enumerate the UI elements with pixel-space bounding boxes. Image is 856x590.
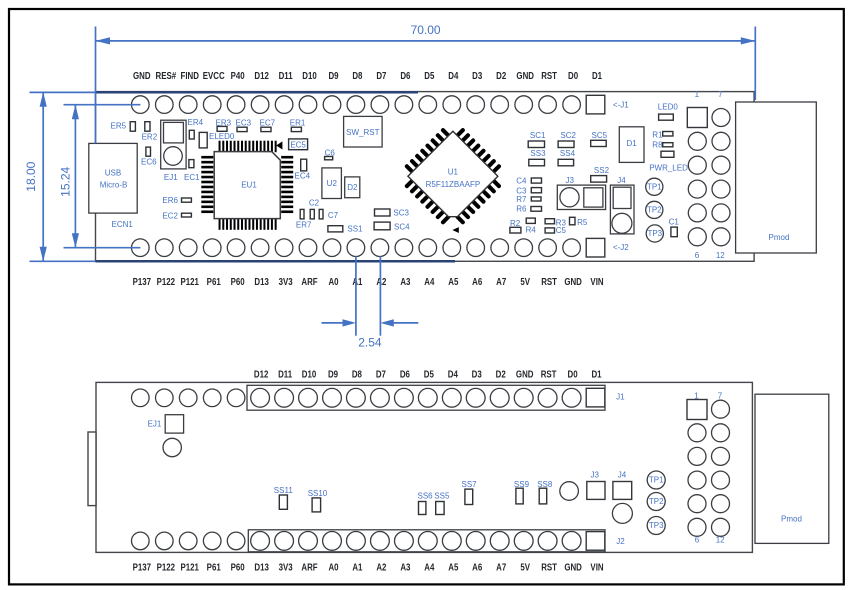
- svg-text:J3: J3: [566, 176, 575, 185]
- svg-text:A6: A6: [472, 276, 482, 287]
- svg-text:C2: C2: [309, 199, 320, 208]
- svg-text:GND: GND: [564, 561, 582, 572]
- svg-text:SS10: SS10: [308, 489, 328, 498]
- svg-text:D2: D2: [496, 368, 506, 379]
- svg-text:D3: D3: [472, 70, 482, 81]
- svg-text:TP3: TP3: [647, 229, 662, 238]
- svg-text:R6: R6: [516, 205, 527, 214]
- svg-text:3V3: 3V3: [279, 276, 293, 287]
- svg-text:D3: D3: [472, 368, 482, 379]
- svg-text:D4: D4: [448, 368, 458, 379]
- svg-text:RST: RST: [541, 561, 557, 572]
- svg-text:C5: C5: [556, 226, 567, 235]
- svg-text:P122: P122: [157, 561, 175, 572]
- svg-text:P61: P61: [207, 561, 221, 572]
- svg-text:Micro-B: Micro-B: [100, 180, 128, 189]
- svg-text:R5F11ZBAAFP: R5F11ZBAAFP: [426, 180, 481, 189]
- svg-text:7: 7: [718, 392, 723, 401]
- svg-text:12: 12: [716, 536, 725, 545]
- svg-text:A7: A7: [496, 276, 506, 287]
- svg-text:D9: D9: [328, 70, 338, 81]
- svg-text:ER1: ER1: [290, 118, 306, 127]
- svg-text:SS4: SS4: [560, 149, 576, 158]
- svg-text:A5: A5: [448, 276, 458, 287]
- svg-text:J4: J4: [617, 176, 626, 185]
- svg-text:SC4: SC4: [394, 223, 410, 232]
- svg-text:EC5: EC5: [290, 141, 306, 150]
- svg-text:EJ1: EJ1: [148, 420, 162, 429]
- svg-text:D13: D13: [254, 561, 268, 572]
- svg-text:12: 12: [716, 251, 725, 260]
- svg-text:EC3: EC3: [236, 118, 252, 127]
- svg-text:A4: A4: [424, 561, 434, 572]
- svg-text:D8: D8: [352, 70, 362, 81]
- svg-text:R1: R1: [652, 130, 663, 139]
- svg-text:D12: D12: [254, 70, 268, 81]
- svg-text:D1: D1: [591, 368, 601, 379]
- svg-text:D0: D0: [568, 70, 578, 81]
- svg-text:SC5: SC5: [592, 131, 608, 140]
- svg-text:R4: R4: [526, 225, 537, 234]
- svg-text:TP1: TP1: [649, 476, 664, 485]
- svg-text:A2: A2: [376, 276, 386, 287]
- svg-text:D5: D5: [424, 70, 434, 81]
- svg-text:5V: 5V: [520, 561, 530, 572]
- svg-text:ELED0: ELED0: [209, 132, 235, 141]
- svg-text:SS7: SS7: [462, 480, 478, 489]
- svg-text:D0: D0: [568, 368, 578, 379]
- svg-text:A6: A6: [472, 561, 482, 572]
- svg-text:R7: R7: [516, 195, 527, 204]
- svg-text:J3: J3: [591, 471, 600, 480]
- svg-text:U2: U2: [327, 179, 338, 188]
- svg-text:P40: P40: [231, 70, 245, 81]
- svg-text:5V: 5V: [520, 276, 530, 287]
- svg-text:RES#: RES#: [155, 70, 176, 81]
- svg-text:A0: A0: [328, 561, 338, 572]
- svg-text:J4: J4: [618, 471, 627, 480]
- svg-text:SC2: SC2: [560, 131, 576, 140]
- svg-text:<-J2: <-J2: [613, 243, 629, 252]
- svg-text:SW_RST: SW_RST: [346, 128, 379, 137]
- svg-text:RST: RST: [541, 368, 557, 379]
- svg-text:VIN: VIN: [590, 276, 603, 287]
- svg-text:A7: A7: [496, 561, 506, 572]
- svg-text:EC1: EC1: [184, 173, 200, 182]
- svg-text:GND: GND: [133, 70, 151, 81]
- svg-text:D4: D4: [448, 70, 458, 81]
- svg-text:RST: RST: [541, 70, 557, 81]
- svg-text:D13: D13: [254, 276, 268, 287]
- svg-text:C7: C7: [328, 211, 339, 220]
- svg-text:D6: D6: [400, 368, 410, 379]
- svg-text:GND: GND: [516, 70, 534, 81]
- svg-text:ER6: ER6: [162, 196, 178, 205]
- svg-text:P121: P121: [180, 561, 198, 572]
- svg-text:SC3: SC3: [393, 209, 409, 218]
- svg-text:ARF: ARF: [301, 276, 318, 287]
- svg-text:TP1: TP1: [647, 182, 662, 191]
- svg-text:Pmod: Pmod: [769, 233, 790, 242]
- svg-text:ER2: ER2: [142, 133, 158, 142]
- svg-text:LED0: LED0: [658, 103, 679, 112]
- svg-text:1: 1: [695, 90, 700, 99]
- svg-text:J2: J2: [616, 537, 625, 546]
- svg-text:D12: D12: [254, 368, 268, 379]
- svg-text:SS2: SS2: [594, 166, 610, 175]
- svg-text:7: 7: [718, 90, 723, 99]
- svg-text:U1: U1: [448, 168, 459, 177]
- svg-text:D8: D8: [352, 368, 362, 379]
- svg-text:TP3: TP3: [649, 521, 664, 530]
- svg-text:D6: D6: [400, 70, 410, 81]
- svg-text:D2: D2: [347, 183, 358, 192]
- svg-text:3V3: 3V3: [279, 561, 293, 572]
- svg-text:P121: P121: [180, 276, 198, 287]
- svg-text:EC7: EC7: [260, 118, 276, 127]
- svg-text:P137: P137: [133, 276, 151, 287]
- svg-text:EVCC: EVCC: [203, 70, 225, 81]
- svg-text:R8: R8: [652, 141, 663, 150]
- svg-text:D10: D10: [302, 368, 316, 379]
- svg-text:TP2: TP2: [649, 497, 664, 506]
- svg-text:SS5: SS5: [434, 492, 450, 501]
- svg-text:6: 6: [695, 251, 700, 260]
- svg-text:EJ1: EJ1: [164, 173, 178, 182]
- svg-text:C4: C4: [516, 177, 527, 186]
- svg-text:EU1: EU1: [241, 180, 257, 189]
- svg-text:D2: D2: [496, 70, 506, 81]
- svg-text:FIND: FIND: [180, 70, 199, 81]
- svg-text:P137: P137: [133, 561, 151, 572]
- svg-text:1: 1: [694, 392, 699, 401]
- svg-text:P122: P122: [157, 276, 175, 287]
- svg-text:TP2: TP2: [647, 205, 662, 214]
- svg-text:RST: RST: [541, 276, 557, 287]
- svg-text:Pmod: Pmod: [781, 515, 802, 524]
- svg-text:D1: D1: [592, 70, 602, 81]
- svg-text:EC4: EC4: [295, 172, 311, 181]
- svg-text:P61: P61: [207, 276, 221, 287]
- svg-text:USB: USB: [105, 169, 121, 178]
- svg-text:SS1: SS1: [347, 225, 363, 234]
- svg-text:15.24: 15.24: [59, 166, 73, 196]
- svg-text:6: 6: [695, 535, 700, 544]
- svg-text:R5: R5: [577, 218, 588, 227]
- svg-text:PWR_LED: PWR_LED: [649, 164, 688, 173]
- svg-text:D10: D10: [302, 70, 316, 81]
- svg-text:<-J1: <-J1: [613, 101, 629, 110]
- svg-text:C1: C1: [669, 217, 680, 226]
- svg-text:P60: P60: [231, 276, 245, 287]
- svg-text:D5: D5: [424, 368, 434, 379]
- svg-text:P60: P60: [231, 561, 245, 572]
- svg-text:D9: D9: [328, 368, 338, 379]
- svg-text:A5: A5: [448, 561, 458, 572]
- svg-text:D7: D7: [376, 368, 386, 379]
- svg-text:EC2: EC2: [162, 211, 178, 220]
- svg-text:J1: J1: [616, 393, 625, 402]
- svg-text:A2: A2: [376, 561, 386, 572]
- svg-text:A0: A0: [328, 276, 338, 287]
- svg-text:18.00: 18.00: [24, 161, 38, 191]
- svg-text:C3: C3: [516, 186, 527, 195]
- svg-text:SS6: SS6: [418, 492, 434, 501]
- svg-text:D7: D7: [376, 70, 386, 81]
- svg-text:EC6: EC6: [141, 158, 157, 167]
- svg-text:70.00: 70.00: [411, 23, 441, 37]
- svg-text:A3: A3: [400, 561, 410, 572]
- svg-text:D11: D11: [278, 368, 292, 379]
- svg-text:D1: D1: [626, 139, 637, 148]
- svg-text:A1: A1: [352, 561, 362, 572]
- svg-text:SS3: SS3: [530, 149, 546, 158]
- svg-text:VIN: VIN: [590, 561, 603, 572]
- svg-text:D11: D11: [279, 70, 293, 81]
- svg-text:2.54: 2.54: [358, 336, 382, 350]
- svg-text:GND: GND: [564, 276, 582, 287]
- svg-text:A3: A3: [400, 276, 410, 287]
- svg-text:ER4: ER4: [188, 118, 204, 127]
- svg-text:SC1: SC1: [530, 131, 546, 140]
- svg-text:SS11: SS11: [274, 486, 294, 495]
- svg-text:A4: A4: [424, 276, 434, 287]
- svg-text:GND: GND: [516, 368, 534, 379]
- svg-text:A1: A1: [352, 276, 362, 287]
- svg-text:ECN1: ECN1: [112, 220, 134, 229]
- svg-text:ER5: ER5: [111, 122, 127, 131]
- svg-text:ARF: ARF: [301, 561, 318, 572]
- svg-text:ER7: ER7: [296, 220, 312, 229]
